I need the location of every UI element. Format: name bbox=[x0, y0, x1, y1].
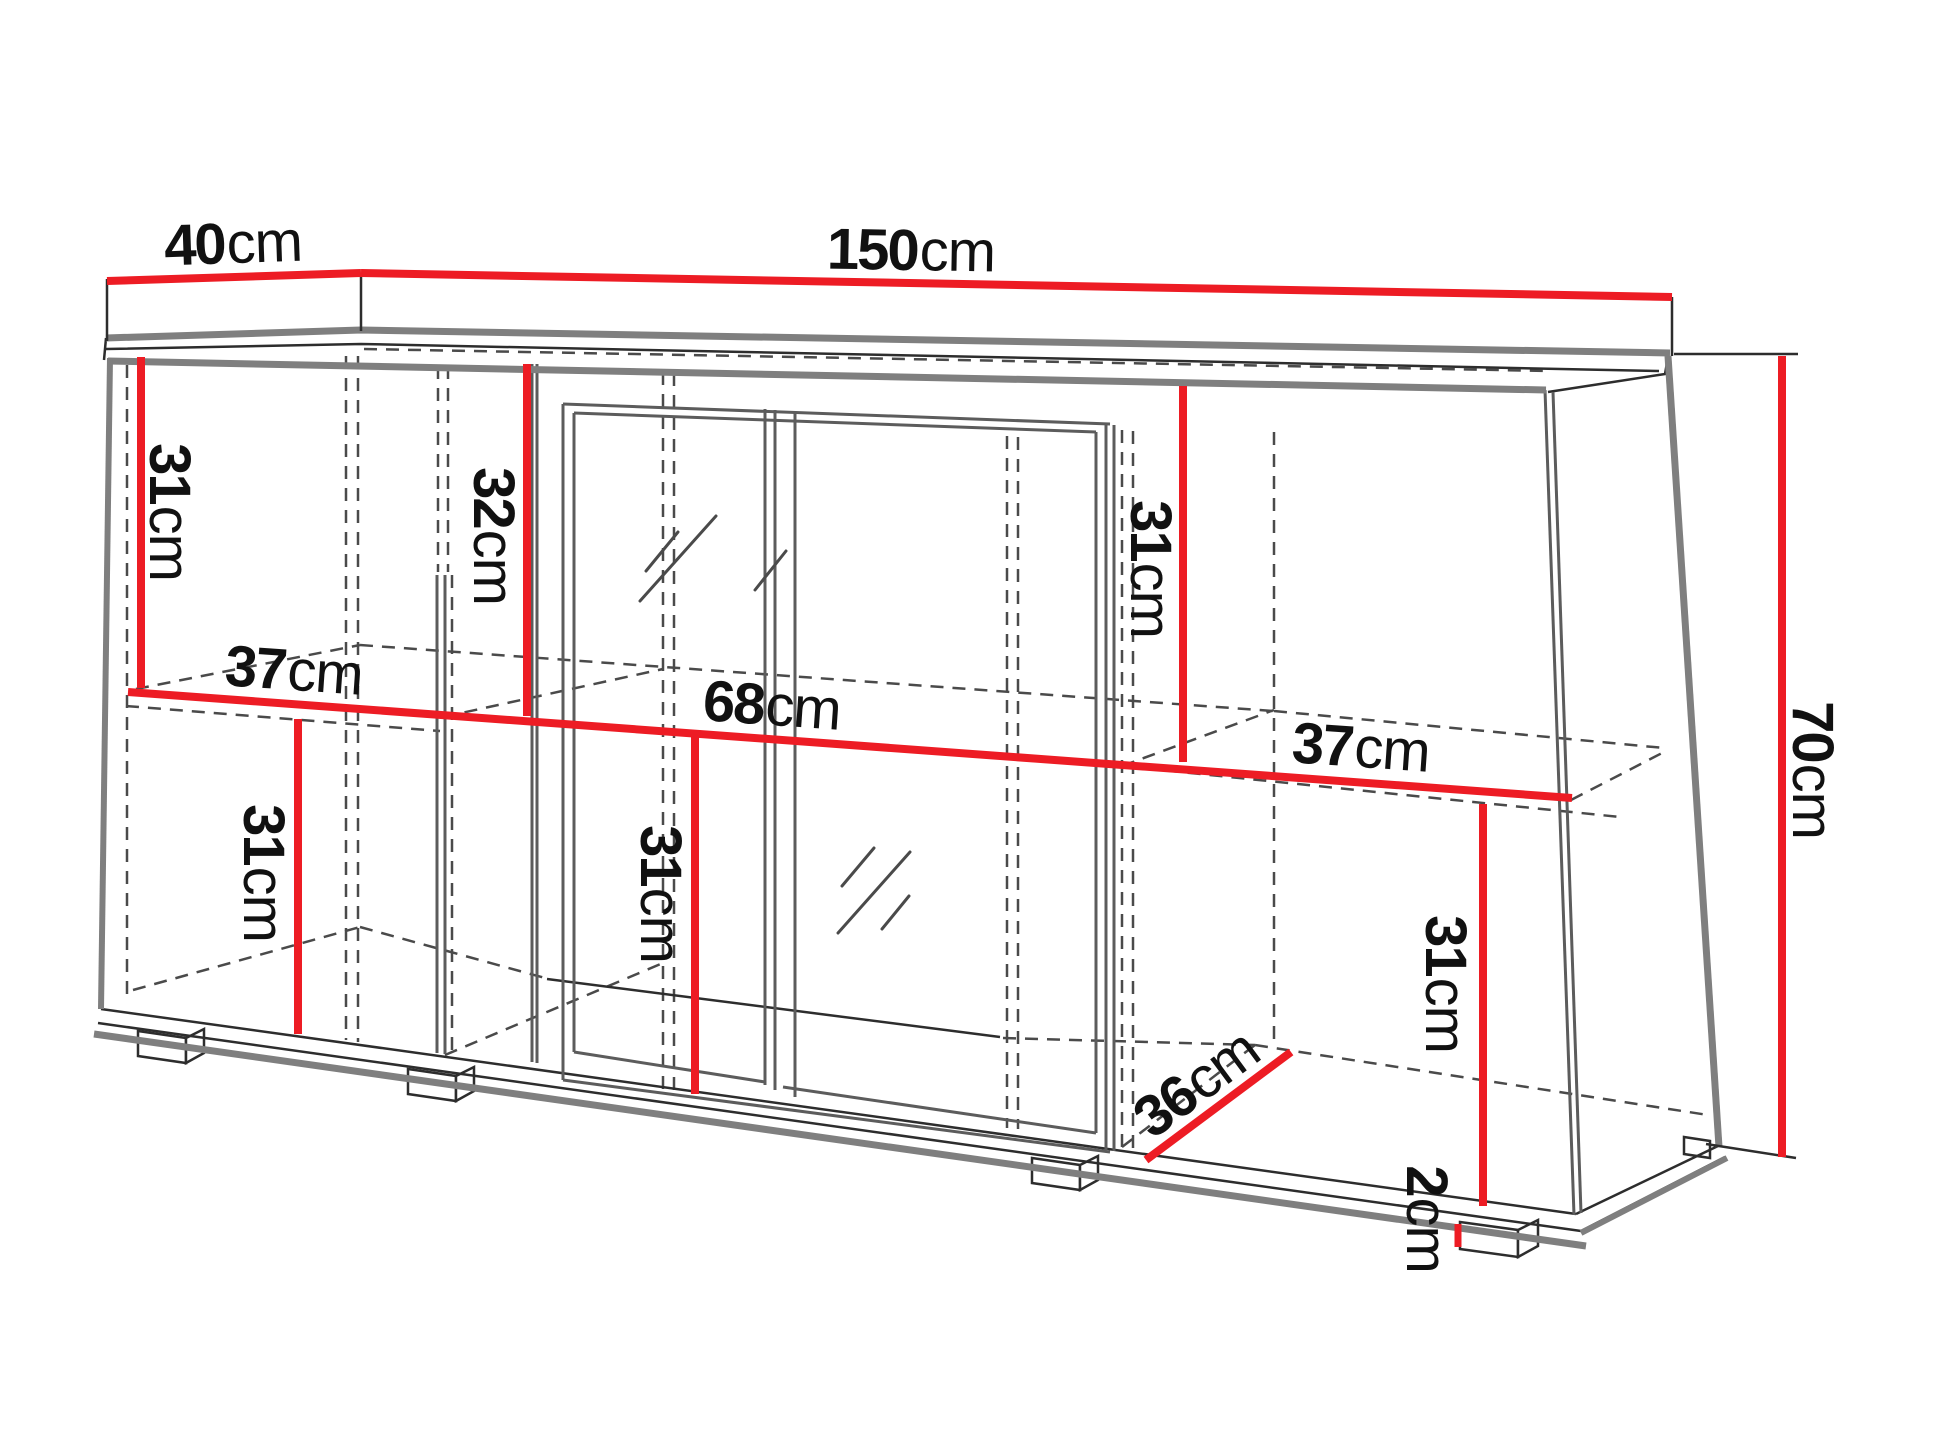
dimension-label-shelf-middle: 68cm bbox=[701, 668, 843, 742]
dimension-label-lower-right: 31cm bbox=[1414, 915, 1479, 1053]
diagram-canvas: 40cm 150cm 70cm 31cm 32cm 31cm 37cm 68cm… bbox=[0, 0, 1939, 1454]
dimension-label-upper-middle: 32cm bbox=[462, 467, 527, 605]
glass-door-outer-top bbox=[563, 404, 1110, 424]
hidden-shelf-right-depth-right bbox=[1571, 752, 1664, 800]
base-right-top-edge bbox=[1576, 1146, 1718, 1214]
left-front-edge bbox=[101, 358, 110, 1009]
hidden-floor-divider-depth bbox=[445, 963, 663, 1055]
dimension-line-width bbox=[361, 273, 1672, 297]
glass-shine-mark bbox=[842, 848, 874, 886]
plinth-front-edge bbox=[98, 1023, 1581, 1231]
dimension-label-depth: 40cm bbox=[163, 208, 303, 278]
base-shadow-front bbox=[94, 1034, 1586, 1246]
glass-shine-mark bbox=[838, 852, 910, 933]
top-panel-left-end bbox=[104, 338, 106, 360]
top-panel-right-end bbox=[1548, 357, 1668, 392]
dimension-label-width: 150cm bbox=[826, 216, 995, 284]
glass-shine-mark bbox=[755, 551, 786, 590]
dimension-label-height: 70cm bbox=[1781, 701, 1846, 839]
dimension-label-upper-right: 31cm bbox=[1119, 500, 1184, 638]
glass-shine-mark bbox=[640, 516, 716, 601]
dimension-label-shelf-right: 37cm bbox=[1290, 710, 1432, 784]
bottom-front-edge bbox=[101, 1009, 1576, 1214]
dimension-label-lower-left: 31cm bbox=[232, 804, 297, 942]
right-panel-front-edge-b bbox=[1553, 392, 1581, 1213]
dimension-label-lower-middle: 31cm bbox=[629, 825, 694, 963]
top-panel-back-edge bbox=[106, 330, 1670, 353]
hidden-shelf-right-depth-left bbox=[1122, 710, 1274, 766]
dimension-label-shelf-left: 37cm bbox=[223, 633, 365, 707]
dimension-label-plinth: 2cm bbox=[1395, 1165, 1460, 1273]
cabinet-feet bbox=[138, 1029, 1710, 1257]
base-shadow-right bbox=[1581, 1158, 1727, 1233]
glass-shine-mark bbox=[882, 896, 909, 929]
glass-door-inner-top bbox=[574, 413, 1096, 432]
right-panel-back-edge bbox=[1668, 356, 1719, 1147]
furniture-dimension-diagram: 40cm 150cm 70cm 31cm 32cm 31cm 37cm 68cm… bbox=[0, 0, 1939, 1454]
dimension-label-upper-left: 31cm bbox=[138, 443, 203, 581]
hidden-shelf-left-depth-right bbox=[443, 669, 663, 717]
